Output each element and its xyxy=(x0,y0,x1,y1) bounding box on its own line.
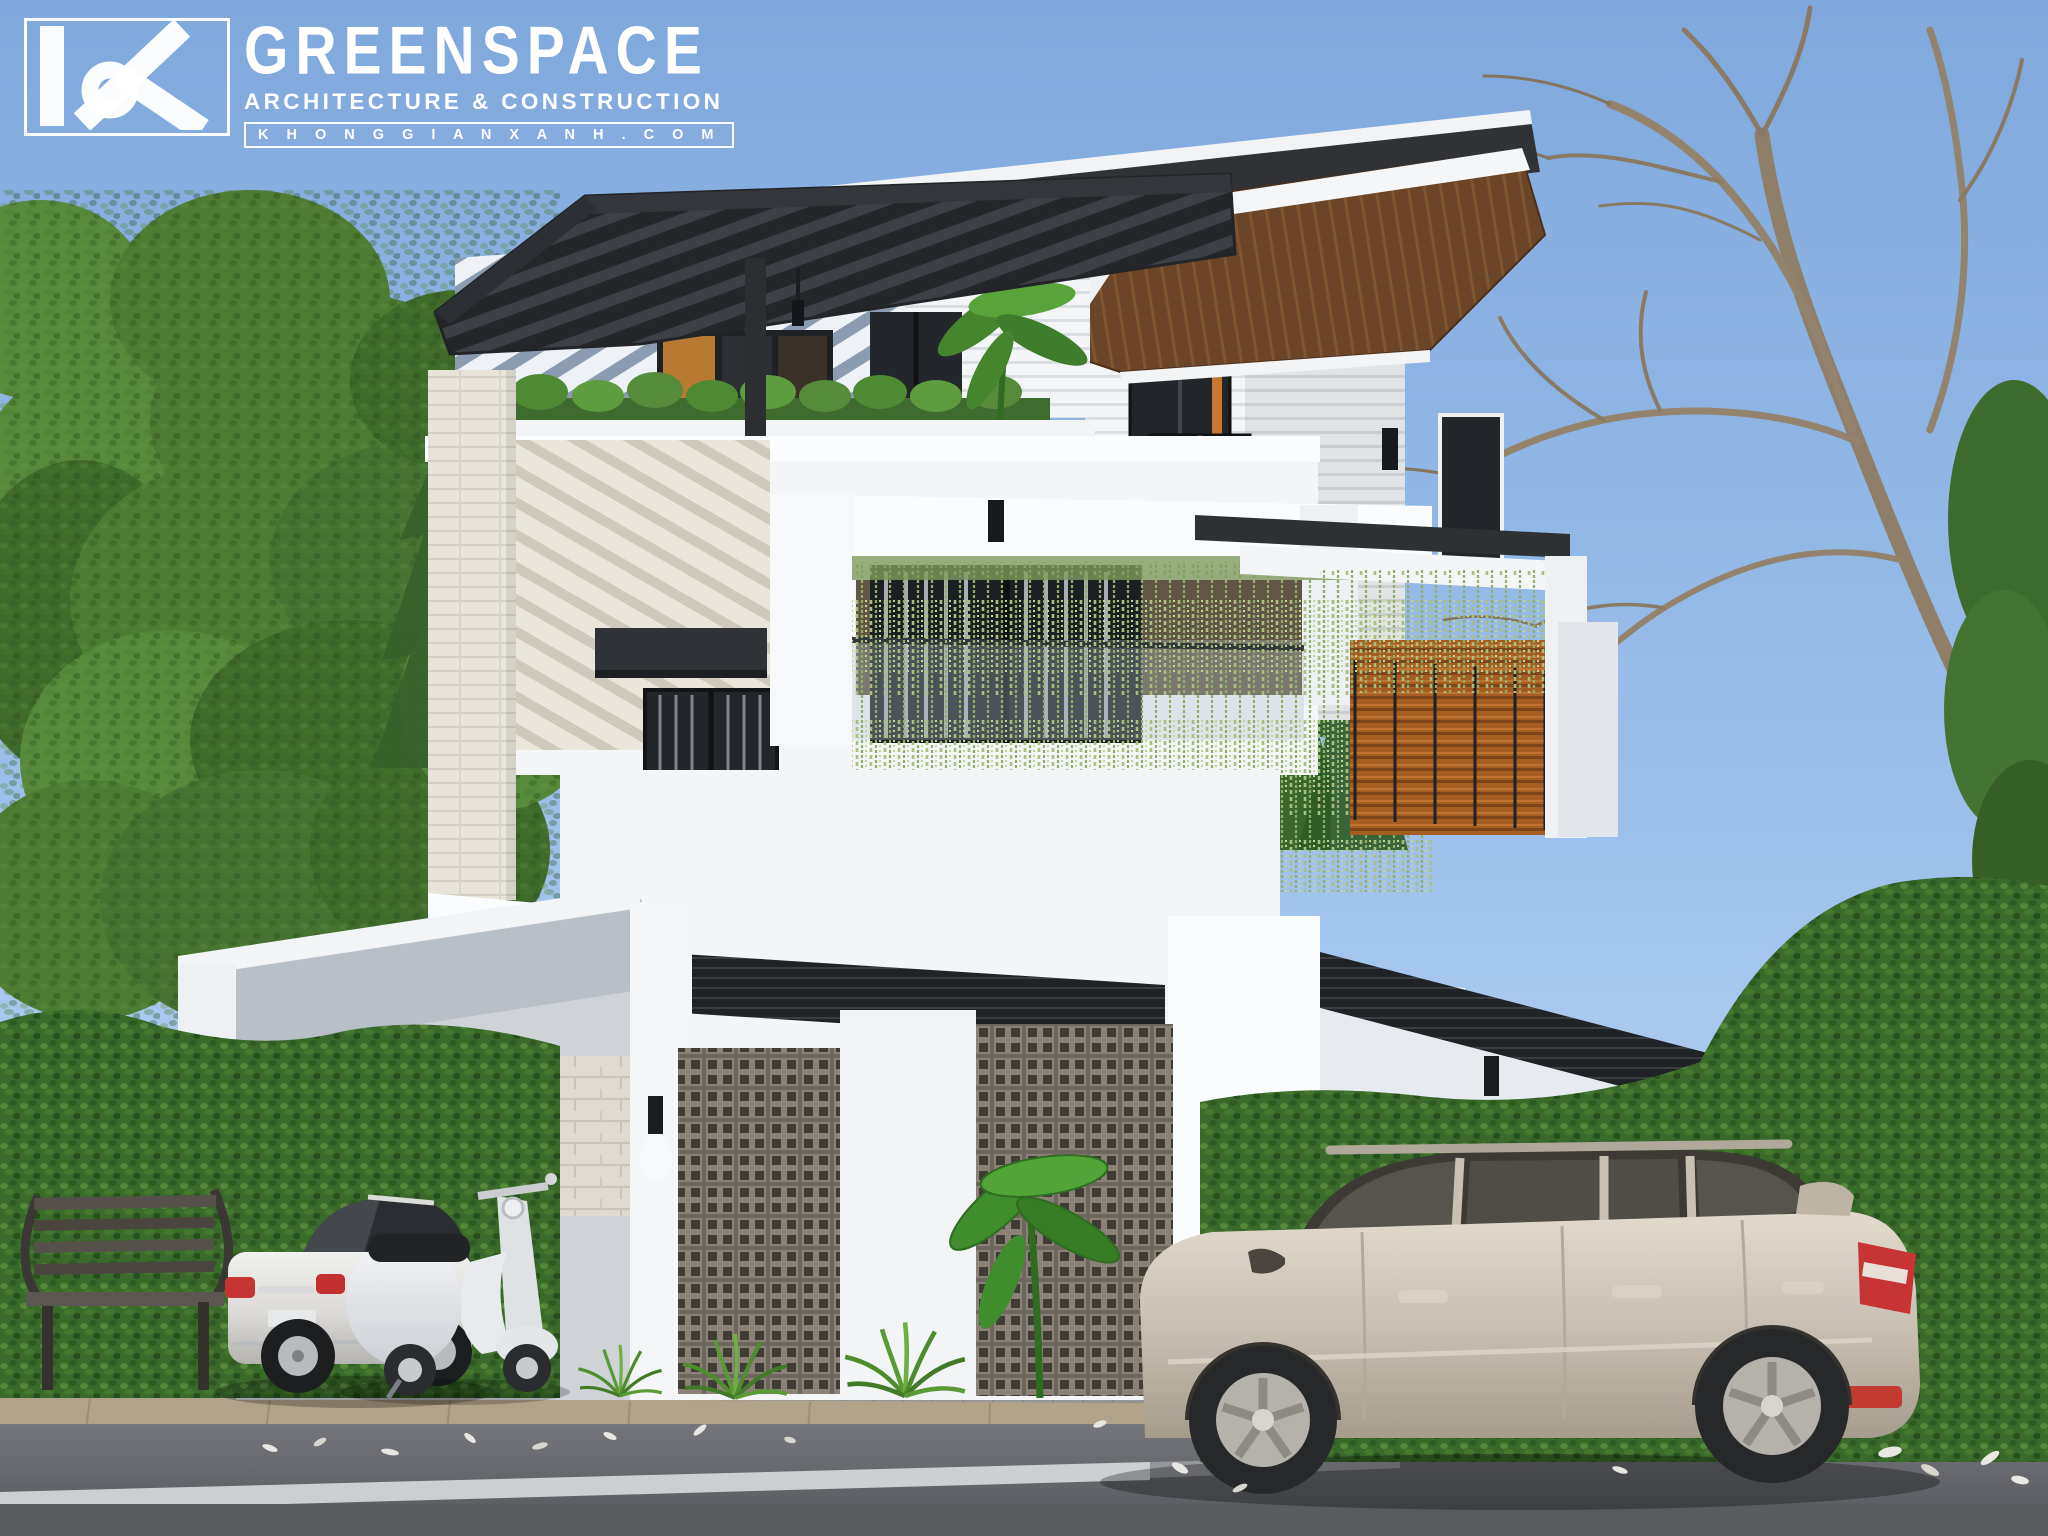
brick-pillar xyxy=(428,370,516,900)
brand-website: K H O N G G I A N X A N H . C O M xyxy=(244,122,734,148)
logo-text: GREENSPACE ARCHITECTURE & CONSTRUCTION K… xyxy=(244,18,734,148)
wall-lamp xyxy=(1484,1056,1499,1096)
suv-door-handle xyxy=(1782,1281,1824,1294)
brand-tagline: ARCHITECTURE & CONSTRUCTION xyxy=(244,89,734,115)
logo-monogram xyxy=(24,18,230,136)
monogram-icon xyxy=(24,18,224,130)
sedan-taillight xyxy=(316,1274,345,1294)
wall-lamp xyxy=(988,500,1004,542)
wall-lamp xyxy=(648,1096,663,1134)
scooter-seat xyxy=(368,1234,470,1262)
scene-illustration xyxy=(0,0,2048,1536)
road-texture-band xyxy=(0,1504,2048,1536)
brand-name: GREENSPACE xyxy=(244,18,734,85)
wall-lamp xyxy=(1382,428,1398,470)
suv-door-handle xyxy=(1398,1290,1448,1303)
scooter-headlight xyxy=(503,1198,523,1218)
logo: GREENSPACE ARCHITECTURE & CONSTRUCTION K… xyxy=(24,18,734,148)
pendant-lamp xyxy=(792,300,804,326)
rendering-canvas: GREENSPACE ARCHITECTURE & CONSTRUCTION K… xyxy=(0,0,2048,1536)
suv-roof-rails xyxy=(1330,1144,1788,1150)
sedan-taillight xyxy=(225,1277,255,1298)
suv-door-handle xyxy=(1612,1285,1662,1298)
